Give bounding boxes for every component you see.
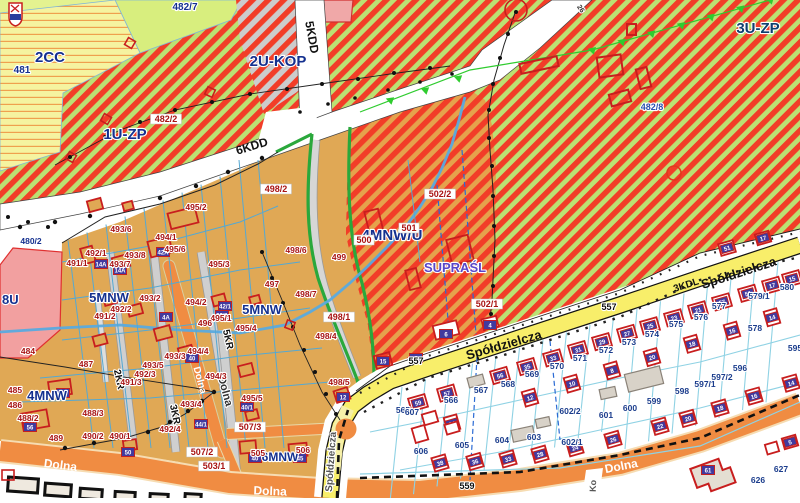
svg-text:506: 506 (296, 445, 310, 455)
svg-text:Dolna: Dolna (253, 483, 287, 498)
svg-text:482/2: 482/2 (155, 114, 178, 124)
svg-text:488/2: 488/2 (17, 413, 39, 423)
svg-text:502/2: 502/2 (429, 189, 452, 199)
svg-text:493/2: 493/2 (139, 293, 161, 303)
svg-text:14A: 14A (114, 268, 126, 274)
svg-text:14A: 14A (95, 262, 107, 268)
svg-text:497: 497 (265, 279, 279, 289)
svg-text:493/7: 493/7 (109, 259, 131, 269)
svg-text:40/1: 40/1 (241, 405, 253, 411)
svg-text:599: 599 (647, 396, 661, 406)
svg-text:503/1: 503/1 (203, 461, 226, 471)
svg-text:498/1: 498/1 (328, 312, 351, 322)
svg-text:575: 575 (669, 319, 683, 329)
svg-text:495/5: 495/5 (241, 393, 263, 403)
svg-text:597/1: 597/1 (694, 379, 716, 389)
svg-text:485: 485 (8, 385, 22, 395)
svg-text:498/4: 498/4 (315, 331, 337, 341)
svg-text:12: 12 (340, 395, 347, 401)
svg-text:495/3: 495/3 (208, 259, 230, 269)
svg-text:50: 50 (125, 450, 132, 456)
svg-text:567: 567 (474, 385, 488, 395)
svg-text:491/1: 491/1 (66, 258, 88, 268)
svg-text:602/2: 602/2 (559, 406, 581, 416)
svg-text:492/1: 492/1 (85, 248, 107, 258)
svg-text:601: 601 (599, 410, 613, 420)
svg-text:491/2: 491/2 (94, 311, 116, 321)
svg-text:40: 40 (189, 356, 196, 362)
svg-text:578: 578 (748, 323, 762, 333)
svg-text:570: 570 (550, 361, 564, 371)
svg-text:607: 607 (405, 407, 419, 417)
svg-text:598: 598 (675, 386, 689, 396)
svg-text:493/4: 493/4 (180, 399, 202, 409)
svg-text:498/6: 498/6 (285, 245, 307, 255)
svg-text:Ko: Ko (588, 479, 598, 492)
svg-text:15: 15 (380, 359, 387, 365)
svg-text:SUPRAŚL: SUPRAŚL (424, 260, 486, 275)
svg-text:481: 481 (14, 65, 31, 76)
svg-text:495/6: 495/6 (164, 244, 186, 254)
svg-text:496: 496 (198, 318, 212, 328)
svg-text:5MNW: 5MNW (89, 290, 129, 305)
svg-text:499: 499 (332, 252, 346, 262)
svg-text:572: 572 (599, 345, 613, 355)
svg-text:498/5: 498/5 (328, 377, 350, 387)
svg-text:505: 505 (251, 448, 265, 458)
svg-text:5MNW: 5MNW (242, 302, 282, 317)
svg-text:569: 569 (525, 369, 539, 379)
svg-text:493/3: 493/3 (164, 351, 186, 361)
svg-text:495/2: 495/2 (185, 202, 207, 212)
svg-text:2U-KOP: 2U-KOP (250, 53, 307, 70)
svg-text:600: 600 (623, 403, 637, 413)
svg-text:500: 500 (356, 235, 371, 245)
svg-text:494/1: 494/1 (155, 232, 177, 242)
svg-text:502/1: 502/1 (476, 299, 499, 309)
svg-text:626: 626 (751, 475, 765, 485)
svg-text:494/4: 494/4 (187, 346, 209, 356)
svg-text:627: 627 (774, 464, 788, 474)
svg-text:484: 484 (21, 346, 35, 356)
svg-text:603: 603 (527, 432, 541, 442)
svg-text:56: 56 (27, 425, 34, 431)
svg-text:507/3: 507/3 (239, 422, 262, 432)
svg-text:557: 557 (601, 302, 616, 312)
svg-text:8U: 8U (2, 292, 19, 307)
svg-text:2CC: 2CC (35, 49, 65, 66)
svg-text:488/3: 488/3 (82, 408, 104, 418)
svg-text:482/7: 482/7 (172, 2, 197, 13)
svg-text:492/4: 492/4 (159, 424, 181, 434)
svg-text:494/3: 494/3 (205, 371, 227, 381)
svg-text:579/1: 579/1 (748, 291, 770, 301)
svg-text:606: 606 (414, 446, 428, 456)
svg-text:494/2: 494/2 (185, 297, 207, 307)
svg-text:495/1: 495/1 (210, 313, 232, 323)
svg-text:6MNW: 6MNW (262, 450, 299, 464)
svg-text:507/2: 507/2 (191, 447, 214, 457)
svg-text:573: 573 (622, 337, 636, 347)
svg-text:602/1: 602/1 (561, 437, 583, 447)
svg-text:596: 596 (733, 363, 747, 373)
svg-text:493/6: 493/6 (110, 224, 132, 234)
svg-text:480/2: 480/2 (20, 236, 42, 246)
svg-text:482/8: 482/8 (641, 102, 664, 112)
svg-text:61: 61 (705, 468, 712, 474)
svg-text:571: 571 (573, 353, 587, 363)
svg-text:491/3: 491/3 (120, 377, 142, 387)
svg-text:487: 487 (79, 359, 93, 369)
svg-text:1U-ZP: 1U-ZP (103, 126, 146, 143)
svg-text:566: 566 (444, 395, 458, 405)
svg-text:568: 568 (501, 379, 515, 389)
svg-text:557: 557 (408, 356, 423, 366)
svg-text:576: 576 (694, 312, 708, 322)
svg-text:42/1: 42/1 (219, 304, 231, 310)
svg-text:577: 577 (712, 301, 726, 311)
svg-text:490/2: 490/2 (82, 431, 104, 441)
svg-text:489: 489 (49, 433, 63, 443)
svg-text:595: 595 (788, 343, 800, 353)
svg-text:559: 559 (459, 481, 474, 491)
svg-text:44/1: 44/1 (195, 422, 207, 428)
svg-text:580: 580 (780, 282, 794, 292)
svg-text:604: 604 (495, 435, 509, 445)
svg-text:486: 486 (8, 400, 22, 410)
svg-text:501: 501 (401, 223, 416, 233)
svg-text:490/1: 490/1 (109, 431, 131, 441)
svg-text:605: 605 (455, 440, 469, 450)
svg-text:495/4: 495/4 (235, 323, 257, 333)
svg-text:574: 574 (645, 329, 659, 339)
svg-text:498/7: 498/7 (295, 289, 317, 299)
svg-text:3U-ZP: 3U-ZP (736, 20, 779, 37)
svg-text:4MNW: 4MNW (27, 388, 67, 403)
svg-text:4A: 4A (162, 315, 170, 321)
svg-text:498/2: 498/2 (265, 184, 288, 194)
svg-text:493/8: 493/8 (124, 250, 146, 260)
